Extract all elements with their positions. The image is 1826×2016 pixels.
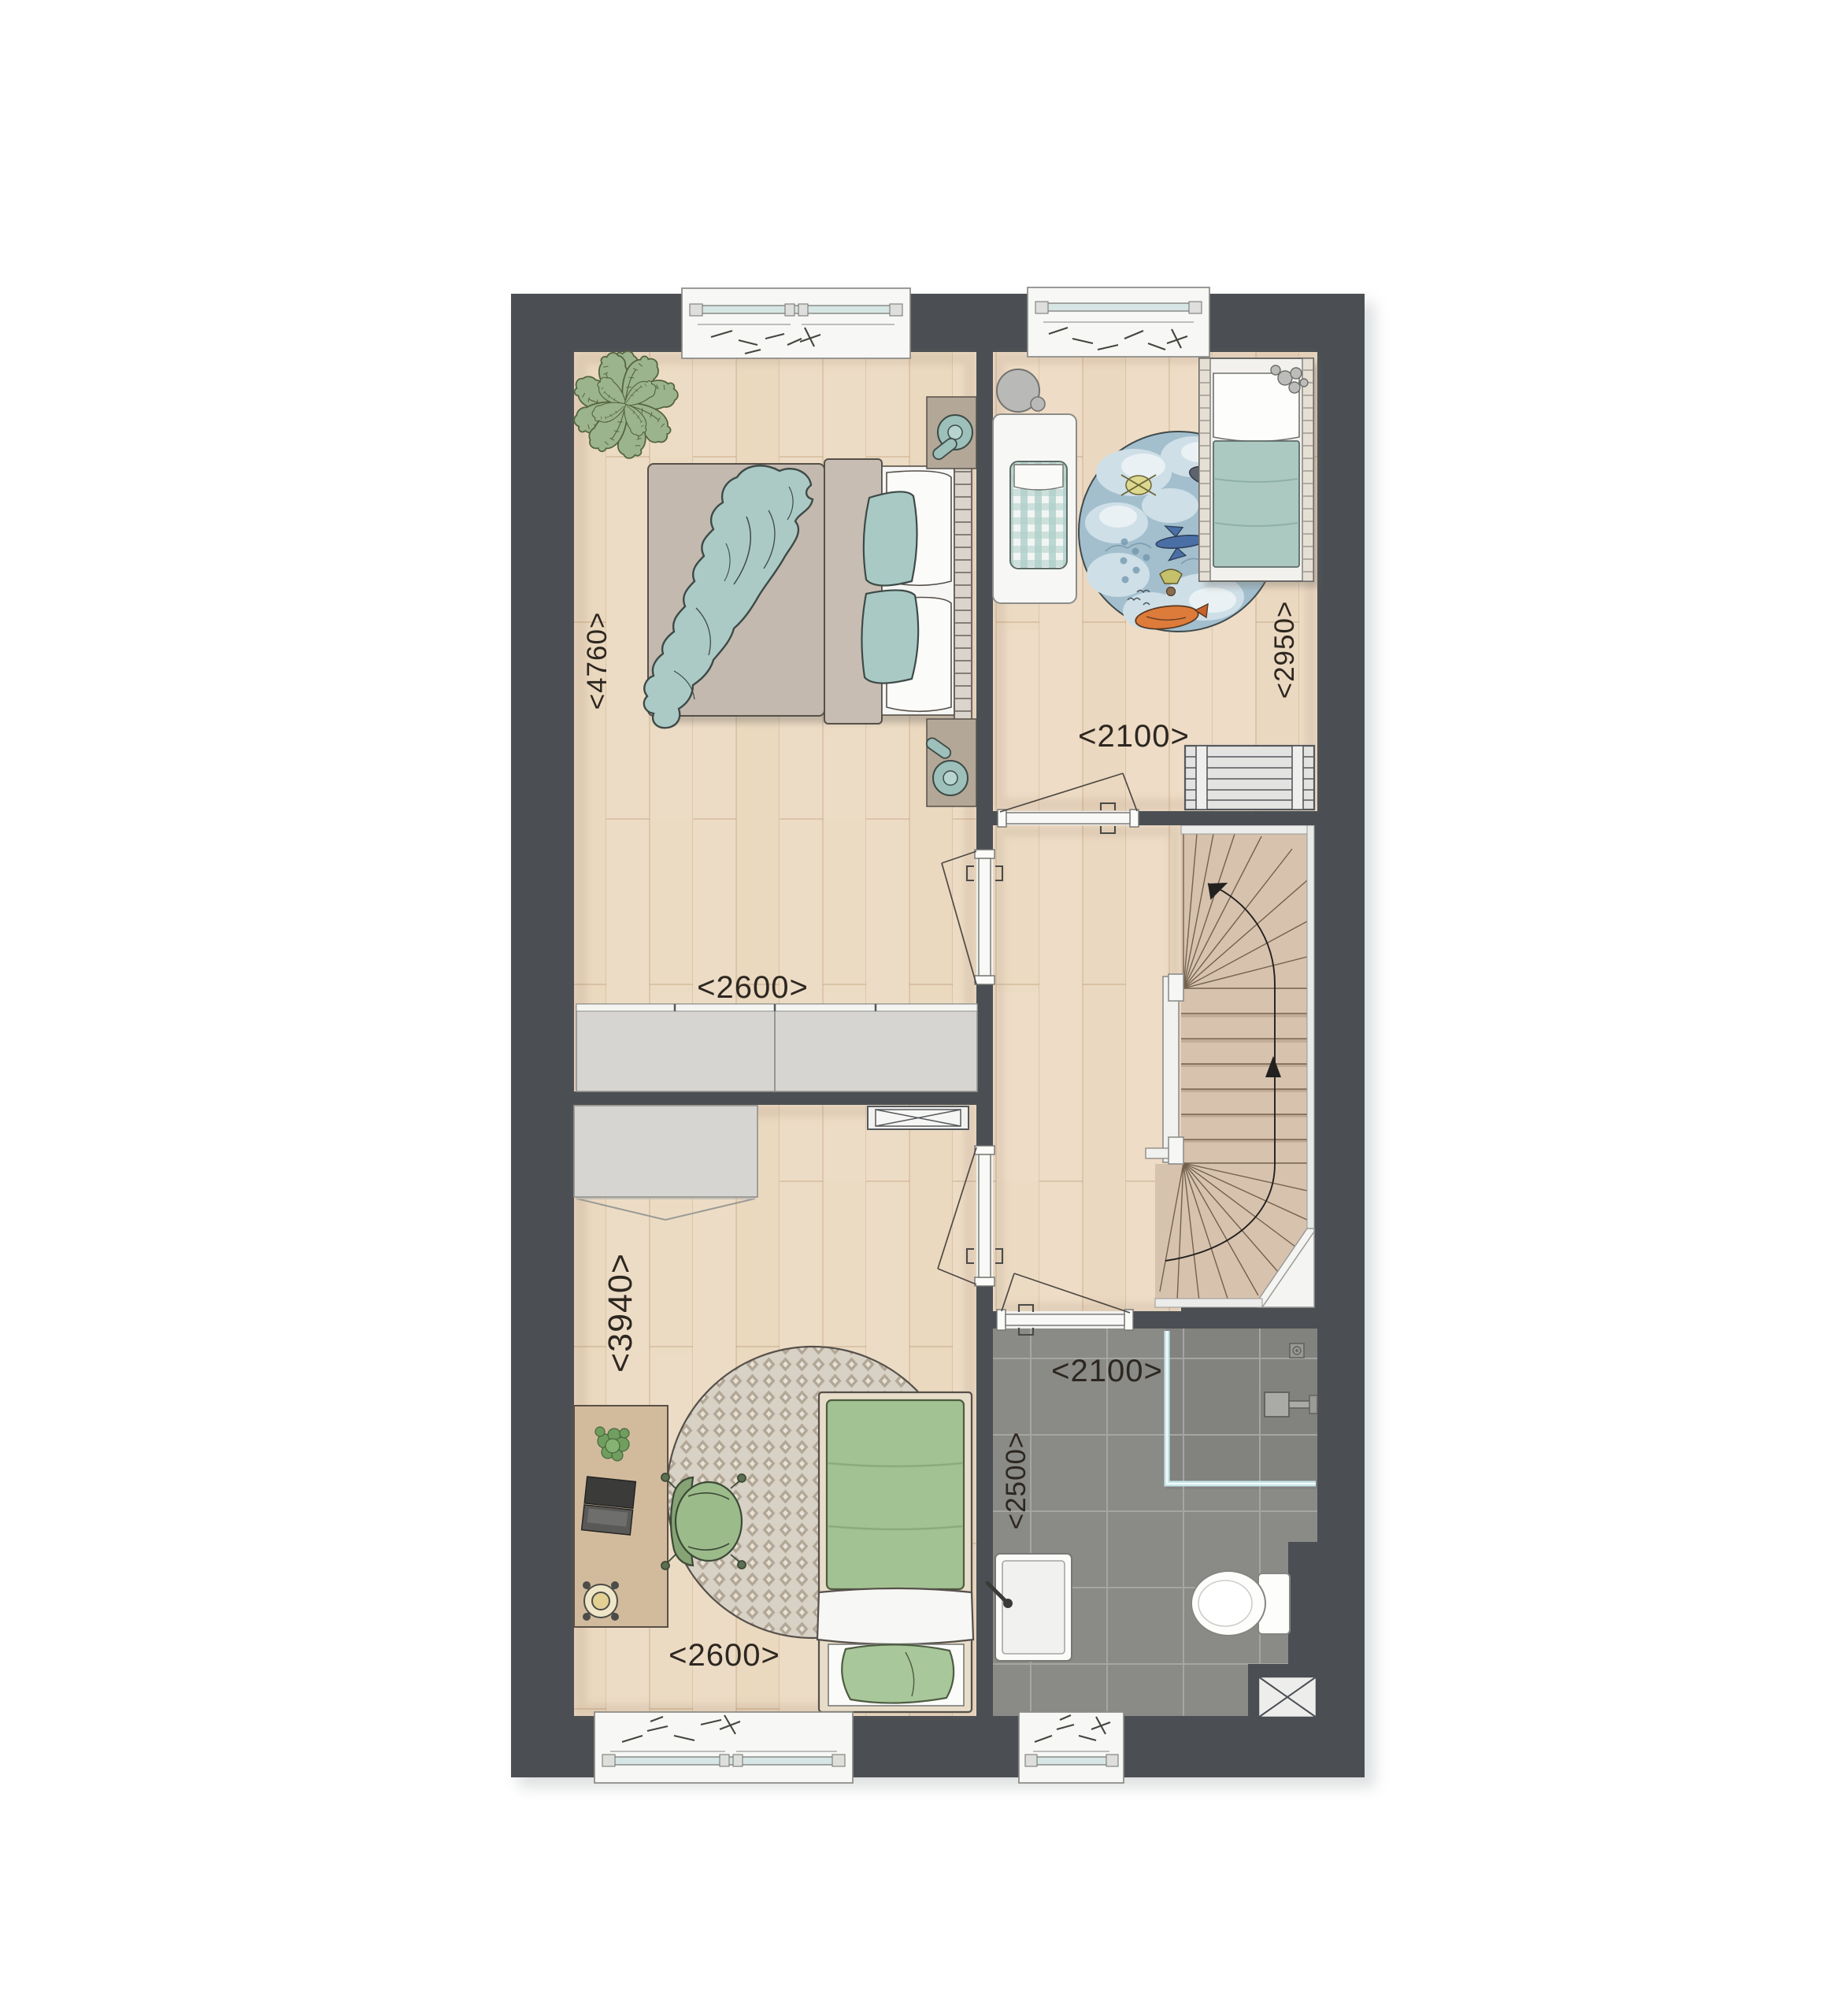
svg-text:<4760>: <4760>	[582, 612, 613, 710]
svg-text:<2600>: <2600>	[669, 1638, 780, 1673]
svg-text:<2100>: <2100>	[1078, 719, 1190, 754]
svg-text:<3940>: <3940>	[602, 1253, 639, 1373]
svg-text:<2600>: <2600>	[697, 970, 809, 1005]
svg-text:<2100>: <2100>	[1051, 1354, 1163, 1388]
svg-text:<2500>: <2500>	[1001, 1432, 1032, 1530]
svg-text:<2950>: <2950>	[1269, 601, 1300, 699]
